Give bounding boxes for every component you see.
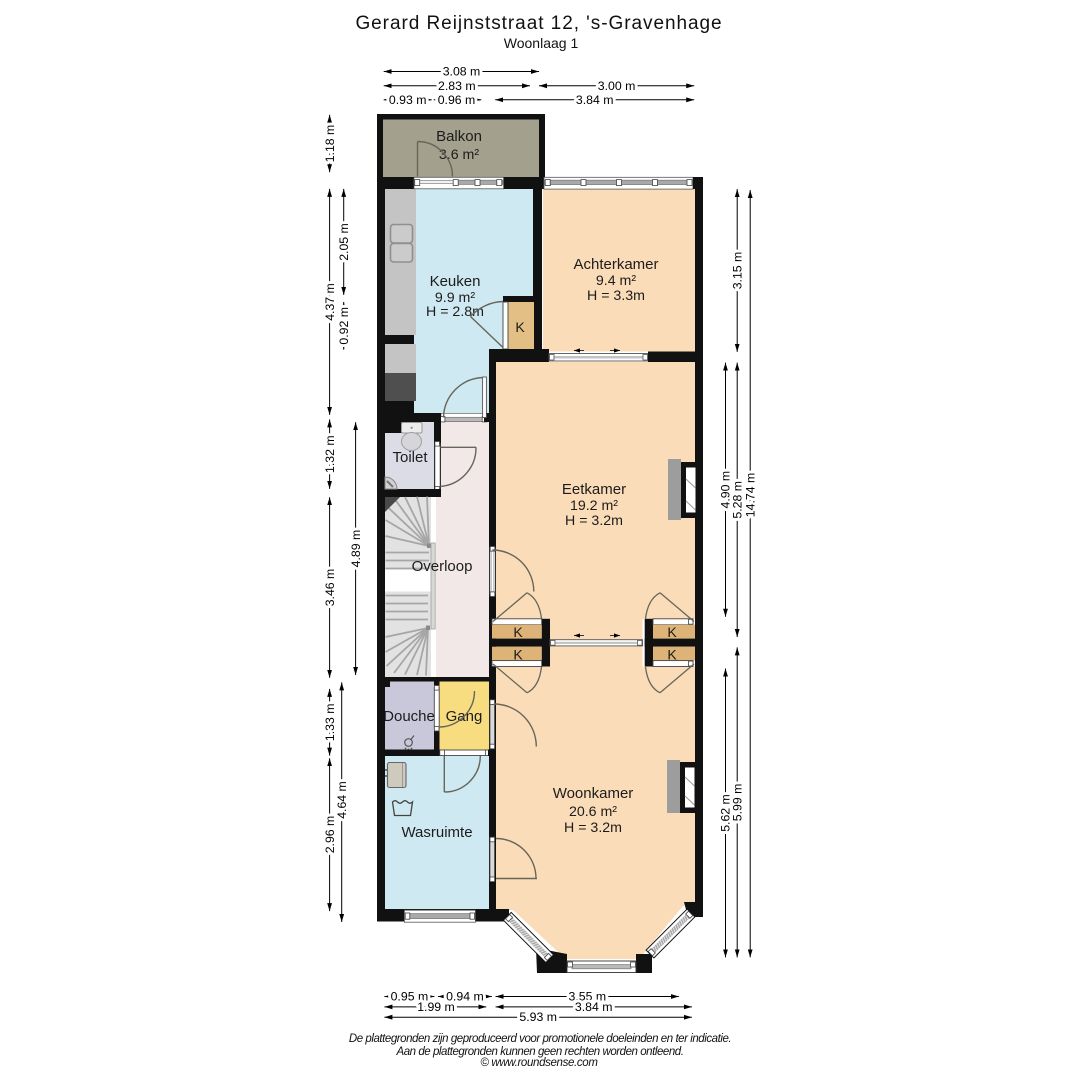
svg-text:2.96 m: 2.96 m <box>323 816 337 854</box>
svg-text:K: K <box>667 624 677 640</box>
svg-text:Toilet: Toilet <box>392 449 428 466</box>
svg-text:H = 3.2m: H = 3.2m <box>564 820 622 836</box>
svg-text:1.18 m: 1.18 m <box>323 125 337 163</box>
svg-text:Eetkamer: Eetkamer <box>562 481 626 498</box>
svg-text:K: K <box>513 647 523 663</box>
svg-text:Achterkamer: Achterkamer <box>573 256 658 273</box>
svg-text:Balkon: Balkon <box>436 128 482 145</box>
svg-text:Overloop: Overloop <box>412 558 473 575</box>
svg-text:0.96 m: 0.96 m <box>438 93 476 107</box>
svg-text:5.99 m: 5.99 m <box>730 784 744 822</box>
svg-text:Wasruimte: Wasruimte <box>401 824 472 841</box>
svg-text:K: K <box>667 647 677 663</box>
svg-text:3.84 m: 3.84 m <box>575 1000 613 1014</box>
svg-text:0.92 m: 0.92 m <box>337 307 351 345</box>
svg-text:3.84 m: 3.84 m <box>576 93 614 107</box>
svg-text:1.99 m: 1.99 m <box>417 1000 455 1014</box>
svg-text:4.37 m: 4.37 m <box>323 283 337 321</box>
svg-text:© www.roundsense.com: © www.roundsense.com <box>480 1057 598 1069</box>
svg-text:19.2 m²: 19.2 m² <box>570 498 618 514</box>
svg-text:4.64 m: 4.64 m <box>335 781 349 819</box>
svg-text:H = 3.3m: H = 3.3m <box>587 288 645 304</box>
svg-text:20.6 m²: 20.6 m² <box>569 804 617 820</box>
svg-text:H = 3.2m: H = 3.2m <box>565 513 623 529</box>
svg-text:3.46 m: 3.46 m <box>323 569 337 607</box>
svg-text:1.33 m: 1.33 m <box>323 704 337 742</box>
svg-text:5.28 m: 5.28 m <box>730 481 744 519</box>
svg-text:0.93 m: 0.93 m <box>389 93 427 107</box>
svg-text:2.83 m: 2.83 m <box>438 79 476 93</box>
svg-text:Woonlaag 1: Woonlaag 1 <box>504 35 579 51</box>
svg-text:Keuken: Keuken <box>430 273 481 290</box>
svg-text:9.4 m²: 9.4 m² <box>596 273 636 289</box>
svg-text:1.32 m: 1.32 m <box>323 435 337 473</box>
svg-text:Gerard Reijnststraat 12, 's-Gr: Gerard Reijnststraat 12, 's-Gravenhage <box>355 13 722 34</box>
svg-text:4.89 m: 4.89 m <box>349 530 363 568</box>
svg-text:3.08 m: 3.08 m <box>443 65 481 79</box>
svg-text:5.93 m: 5.93 m <box>519 1010 557 1024</box>
svg-text:Woonkamer: Woonkamer <box>553 785 634 802</box>
svg-text:K: K <box>513 624 523 640</box>
svg-text:K: K <box>515 319 525 335</box>
svg-text:14.74 m: 14.74 m <box>743 473 757 517</box>
svg-text:2.05 m: 2.05 m <box>337 223 351 261</box>
svg-text:De plattegronden zijn geproduc: De plattegronden zijn geproduceerd voor … <box>349 1033 731 1045</box>
svg-text:Douche: Douche <box>383 708 435 725</box>
svg-text:3.15 m: 3.15 m <box>730 252 744 290</box>
svg-text:3.00 m: 3.00 m <box>598 79 636 93</box>
